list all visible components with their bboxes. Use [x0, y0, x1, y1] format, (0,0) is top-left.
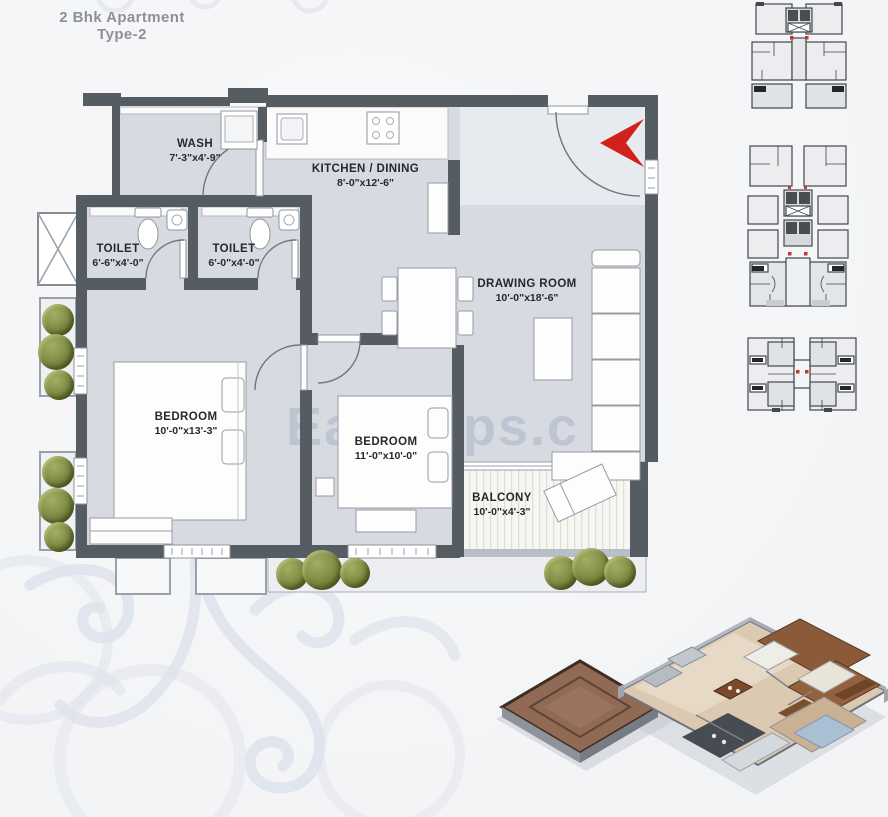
- room-name: KITCHEN / DINING: [288, 163, 443, 176]
- entry-arrow-icon: [598, 117, 646, 169]
- room-name: WASH: [135, 138, 255, 151]
- isometric-3d-view: [482, 595, 888, 817]
- room-label-balcony: BALCONY 10'-0"x4'-3": [448, 492, 556, 519]
- title-line-2: Type-2: [97, 26, 147, 43]
- room-label-drawing-room: DRAWING ROOM 10'-0"x18'-6": [452, 278, 602, 305]
- bush-icon: [38, 488, 74, 524]
- room-dims: 8'-0"x12'-6": [288, 177, 443, 190]
- room-dims: 10'-0"x18'-6": [452, 292, 602, 305]
- room-name: TOILET: [68, 243, 168, 256]
- room-label-bedroom-1: BEDROOM 10'-0"x13'-3": [116, 411, 256, 438]
- room-label-kitchen: KITCHEN / DINING 8'-0"x12'-6": [288, 163, 443, 190]
- room-label-toilet-2: TOILET 6'-0"x4'-0": [184, 243, 284, 270]
- hob-icon: [366, 111, 400, 145]
- room-name: BEDROOM: [116, 411, 256, 424]
- room-name: BEDROOM: [316, 436, 456, 449]
- room-dims: 10'-0"x4'-3": [448, 506, 556, 519]
- room-name: DRAWING ROOM: [452, 278, 602, 291]
- key-plan-thumbnail-3: [742, 332, 862, 416]
- room-label-wash: WASH 7'-3"x4'-9": [135, 138, 255, 165]
- bush-icon: [44, 522, 74, 552]
- title-line-1: 2 Bhk Apartment: [59, 9, 184, 26]
- floor-plan-sheet: Ea ops.c: [0, 0, 888, 817]
- room-dims: 6'-6"x4'-0": [68, 257, 168, 270]
- room-dims: 10'-0"x13'-3": [116, 425, 256, 438]
- page-title: 2 Bhk Apartment Type-2: [52, 9, 192, 43]
- room-dims: 6'-0"x4'-0": [184, 257, 284, 270]
- room-name: BALCONY: [448, 492, 556, 505]
- bush-icon: [340, 558, 370, 588]
- room-dims: 7'-3"x4'-9": [135, 152, 255, 165]
- room-label-bedroom-2: BEDROOM 11'-0"x10'-0": [316, 436, 456, 463]
- key-plan-thumbnail-1: [738, 0, 860, 112]
- room-label-toilet-1: TOILET 6'-6"x4'-0": [68, 243, 168, 270]
- bush-icon: [38, 334, 74, 370]
- bush-icon: [604, 556, 636, 588]
- kitchen-sink-icon: [276, 113, 308, 145]
- bush-icon: [44, 370, 74, 400]
- bush-icon: [302, 550, 342, 590]
- room-name: TOILET: [184, 243, 284, 256]
- bush-icon: [42, 456, 74, 488]
- key-plan-thumbnail-2: [736, 142, 860, 310]
- plan-furniture: [0, 0, 680, 620]
- bush-icon: [42, 304, 74, 336]
- room-dims: 11'-0"x10'-0": [316, 450, 456, 463]
